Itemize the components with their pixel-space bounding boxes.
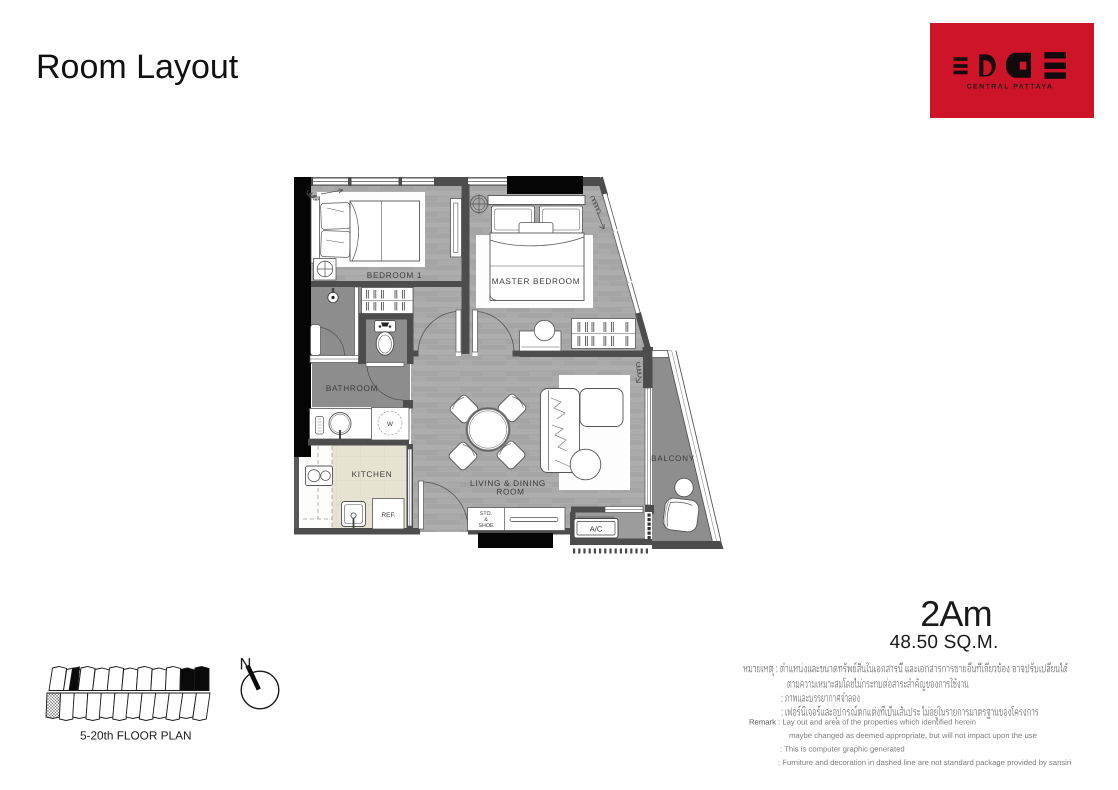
svg-text:SHOE: SHOE [478, 523, 493, 529]
svg-text:REF.: REF. [381, 512, 395, 519]
svg-text:A/C: A/C [590, 525, 603, 534]
svg-text:: Furniture and decoration in: : Furniture and decoration in dashed lin… [778, 758, 1071, 767]
svg-text:BALCONY: BALCONY [651, 454, 695, 463]
svg-text:ROOM: ROOM [496, 488, 524, 497]
svg-text:: This is computer graphic ge: : This is computer graphic generated [780, 745, 905, 754]
svg-text:MASTER BEDROOM: MASTER BEDROOM [492, 277, 581, 286]
svg-text:BATHROOM: BATHROOM [326, 384, 378, 393]
svg-text:5-20th FLOOR PLAN: 5-20th FLOOR PLAN [80, 729, 191, 743]
svg-text:BEDROOM 1: BEDROOM 1 [367, 271, 422, 280]
svg-text:Remark : Lay out and area of t: Remark : Lay out and area of the propert… [749, 718, 976, 727]
svg-text:Room Layout: Room Layout [36, 48, 239, 86]
svg-text:N: N [240, 656, 252, 674]
svg-text:48.50 SQ.M.: 48.50 SQ.M. [890, 632, 999, 653]
svg-text:W: W [387, 421, 393, 428]
svg-text:CENTRAL PATTAYA: CENTRAL PATTAYA [967, 84, 1054, 91]
svg-text:KITCHEN: KITCHEN [352, 470, 393, 479]
svg-text:maybe changed as deemed approp: maybe changed as deemed appropriate, but… [789, 731, 1037, 740]
svg-text:2Am: 2Am [920, 593, 992, 634]
